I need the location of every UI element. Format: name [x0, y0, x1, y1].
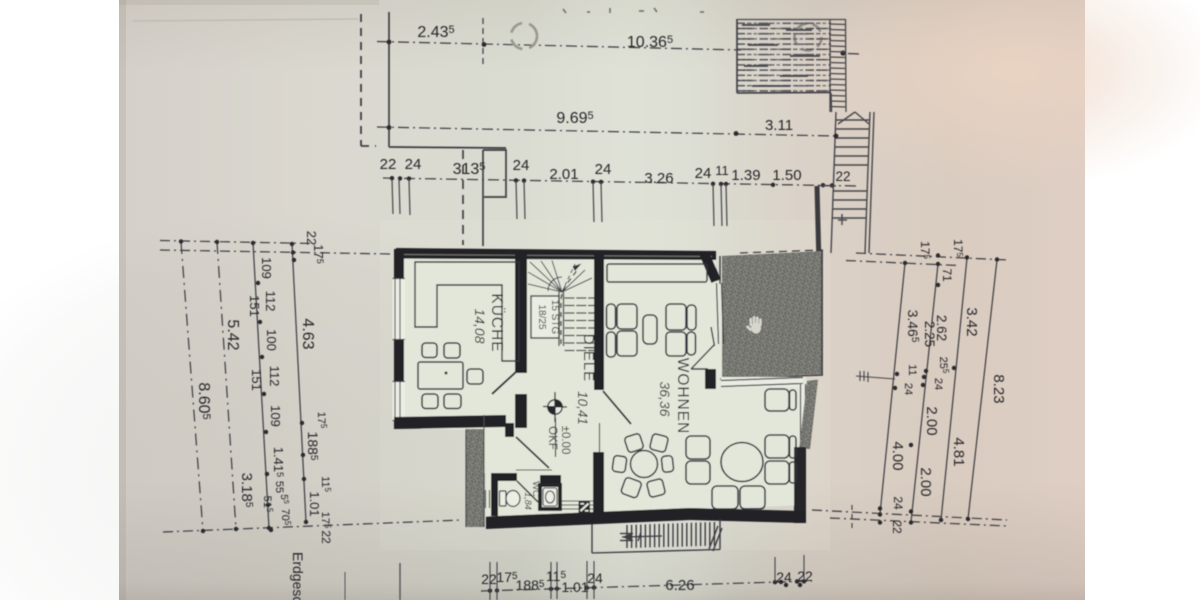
svg-text:22: 22	[319, 530, 333, 544]
svg-text:24: 24	[587, 570, 603, 586]
svg-text:KÜCHE: KÜCHE	[488, 293, 506, 352]
svg-text:36,36: 36,36	[657, 381, 673, 416]
svg-text:4.81: 4.81	[950, 437, 967, 466]
svg-text:1.01: 1.01	[561, 579, 588, 595]
svg-text:14,08: 14,08	[472, 308, 488, 343]
svg-text:24: 24	[932, 378, 944, 390]
svg-text:151: 151	[249, 369, 264, 391]
svg-text:24: 24	[891, 496, 905, 510]
svg-text:11: 11	[715, 163, 729, 178]
svg-text:4.63: 4.63	[299, 318, 316, 349]
svg-text:5.42: 5.42	[224, 319, 241, 350]
svg-text:71: 71	[940, 268, 954, 282]
svg-text:1,84: 1,84	[523, 492, 533, 510]
svg-text:24: 24	[405, 156, 422, 173]
svg-text:3.11: 3.11	[765, 117, 793, 134]
svg-text:151: 151	[247, 295, 262, 317]
svg-text:22: 22	[797, 568, 813, 584]
svg-text:109: 109	[268, 405, 283, 427]
svg-text:22: 22	[890, 520, 904, 534]
svg-text:10.365: 10.365	[627, 34, 673, 51]
svg-text:WOHNEN: WOHNEN	[674, 358, 691, 435]
svg-text:1.39: 1.39	[731, 167, 760, 184]
svg-text:15 STG: 15 STG	[549, 300, 560, 335]
svg-text:3.42: 3.42	[963, 307, 980, 336]
svg-text:24: 24	[695, 165, 712, 182]
svg-text:2.00: 2.00	[923, 406, 940, 435]
svg-text:2.00: 2.00	[917, 467, 934, 496]
svg-text:22: 22	[835, 169, 850, 184]
svg-text:24: 24	[776, 569, 792, 585]
svg-text:2.62: 2.62	[934, 315, 949, 341]
svg-text:6.26: 6.26	[665, 577, 694, 594]
svg-text:10,41: 10,41	[575, 391, 590, 425]
svg-text:112: 112	[263, 291, 278, 312]
svg-text:24: 24	[595, 161, 612, 178]
svg-text:24: 24	[902, 383, 914, 395]
svg-text:22: 22	[380, 156, 397, 173]
svg-text:22: 22	[481, 571, 497, 587]
svg-text:112: 112	[267, 366, 282, 387]
svg-text:24: 24	[513, 157, 530, 174]
svg-text:11: 11	[906, 364, 918, 375]
svg-text:22: 22	[304, 231, 319, 245]
svg-text:109: 109	[259, 257, 274, 279]
svg-text:±0.00: ±0.00	[559, 426, 571, 455]
svg-text:8.23: 8.23	[990, 374, 1007, 403]
svg-text:100: 100	[264, 329, 279, 351]
svg-text:Erdgesch: Erdgesch	[290, 552, 306, 600]
svg-text:DIELE: DIELE	[580, 334, 597, 382]
svg-text:55: 55	[273, 481, 285, 493]
svg-text:18/25: 18/25	[536, 304, 547, 329]
svg-text:4.00: 4.00	[889, 441, 906, 470]
svg-text:1.50: 1.50	[772, 167, 801, 184]
svg-text:3.26: 3.26	[644, 170, 673, 187]
svg-text:OKF: OKF	[546, 426, 558, 450]
svg-text:2.01: 2.01	[549, 166, 578, 183]
